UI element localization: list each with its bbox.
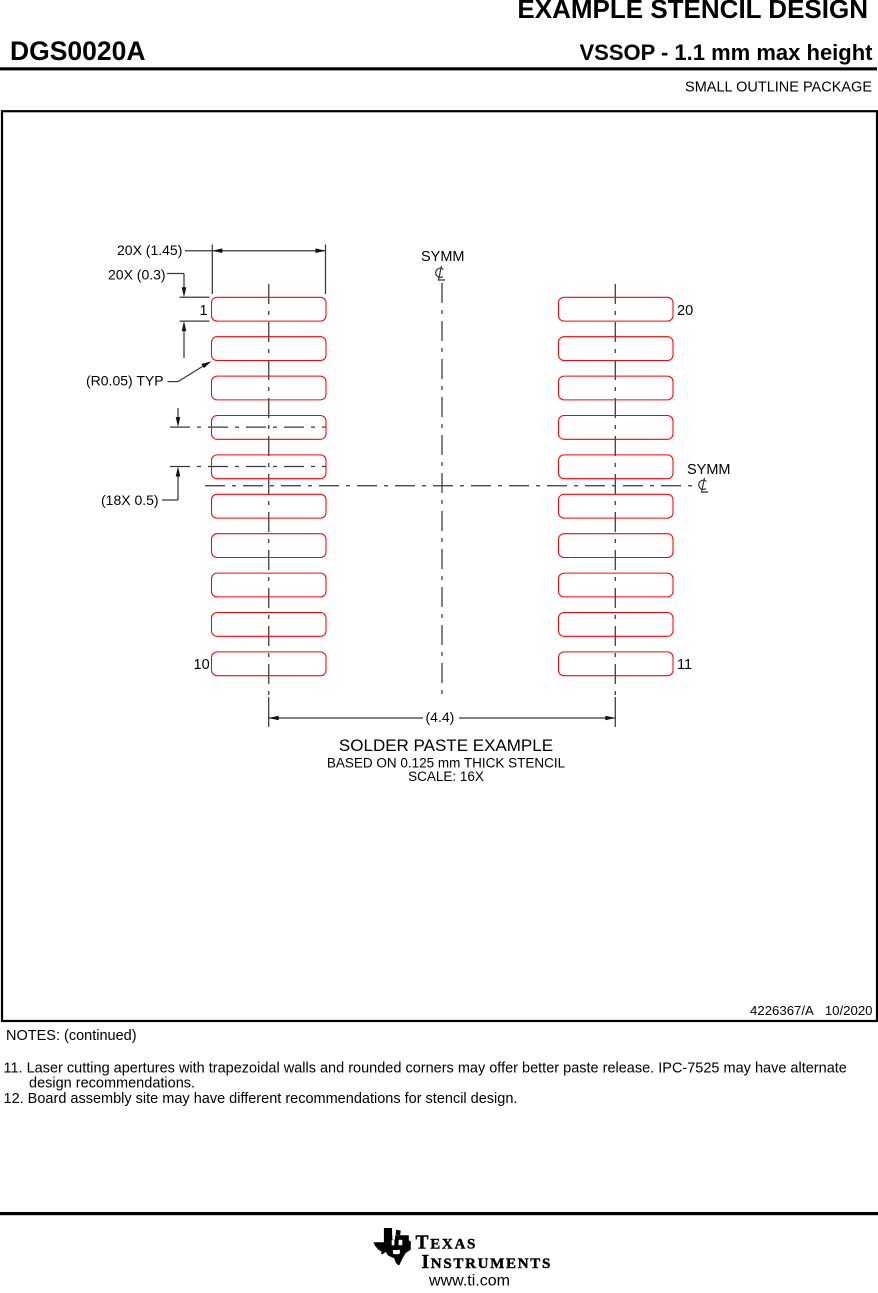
svg-text:EXAMPLE STENCIL DESIGN: EXAMPLE STENCIL DESIGN bbox=[517, 0, 868, 24]
svg-text:(4.4): (4.4) bbox=[426, 709, 455, 725]
svg-text:TEXAS: TEXAS bbox=[416, 1233, 478, 1254]
svg-text:SYMM: SYMM bbox=[421, 249, 465, 265]
svg-text:VSSOP - 1.1 mm max height: VSSOP - 1.1 mm max height bbox=[579, 40, 873, 65]
svg-text:11. Laser cutting apertures wi: 11. Laser cutting apertures with trapezo… bbox=[4, 1061, 847, 1077]
svg-text:SOLDER PASTE EXAMPLE: SOLDER PASTE EXAMPLE bbox=[339, 736, 553, 755]
svg-text:1: 1 bbox=[200, 303, 208, 319]
svg-text:10: 10 bbox=[194, 657, 210, 673]
svg-text:20: 20 bbox=[677, 303, 693, 319]
svg-text:NOTES: (continued): NOTES: (continued) bbox=[6, 1028, 137, 1044]
svg-text:11: 11 bbox=[677, 657, 692, 673]
svg-text:SMALL OUTLINE PACKAGE: SMALL OUTLINE PACKAGE bbox=[685, 80, 872, 96]
svg-text:design recommendations.: design recommendations. bbox=[29, 1076, 195, 1092]
svg-text:12. Board assembly site may ha: 12. Board assembly site may have differe… bbox=[4, 1091, 518, 1107]
svg-text:20X (1.45): 20X (1.45) bbox=[117, 242, 182, 258]
svg-text:DGS0020A: DGS0020A bbox=[10, 36, 146, 66]
svg-text:www.ti.com: www.ti.com bbox=[428, 1273, 510, 1289]
svg-text:4226367/A 10/2020: 4226367/A 10/2020 bbox=[750, 1003, 872, 1018]
svg-text:INSTRUMENTS: INSTRUMENTS bbox=[422, 1252, 552, 1273]
svg-text:(R0.05) TYP: (R0.05) TYP bbox=[86, 373, 164, 389]
svg-text:SYMM: SYMM bbox=[687, 462, 731, 478]
svg-text:SCALE: 16X: SCALE: 16X bbox=[408, 769, 484, 784]
svg-text:(18X 0.5): (18X 0.5) bbox=[101, 492, 159, 508]
svg-text:20X (0.3): 20X (0.3) bbox=[108, 267, 166, 283]
